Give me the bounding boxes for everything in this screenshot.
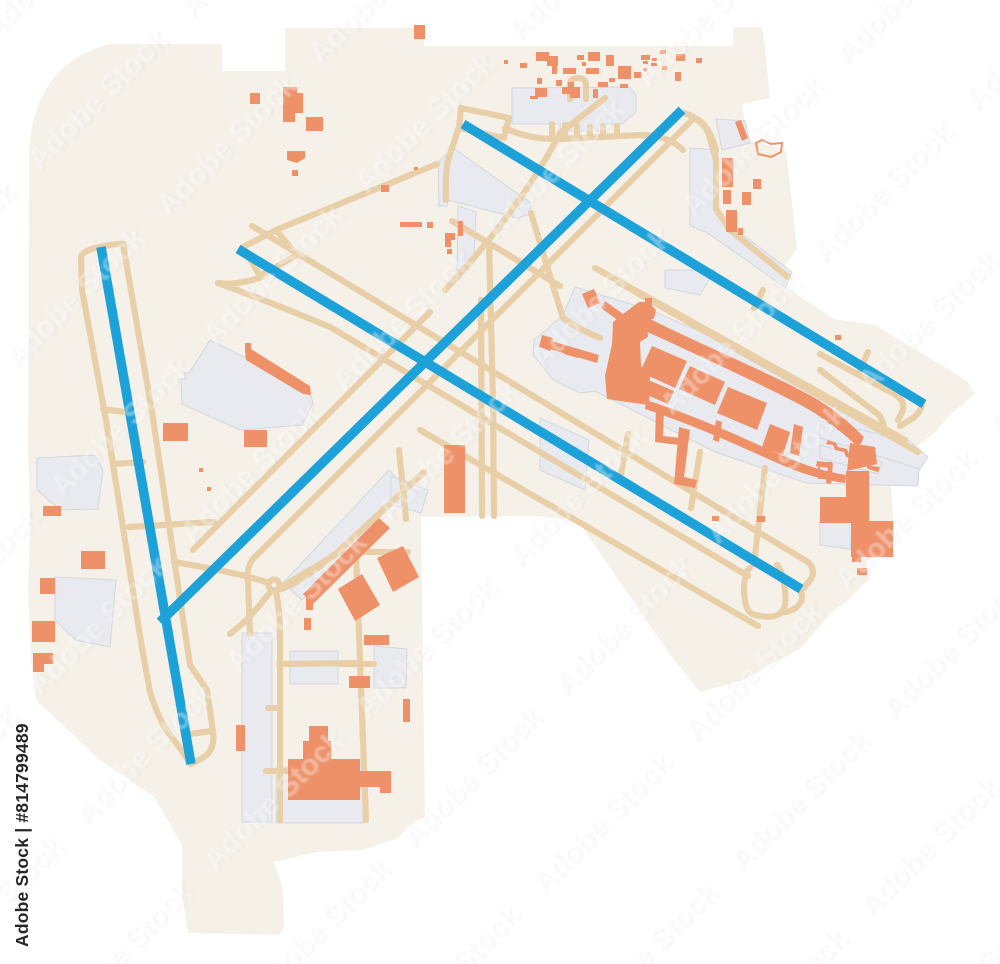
- svg-text:Adobe Stock | #814799489: Adobe Stock | #814799489: [12, 723, 32, 947]
